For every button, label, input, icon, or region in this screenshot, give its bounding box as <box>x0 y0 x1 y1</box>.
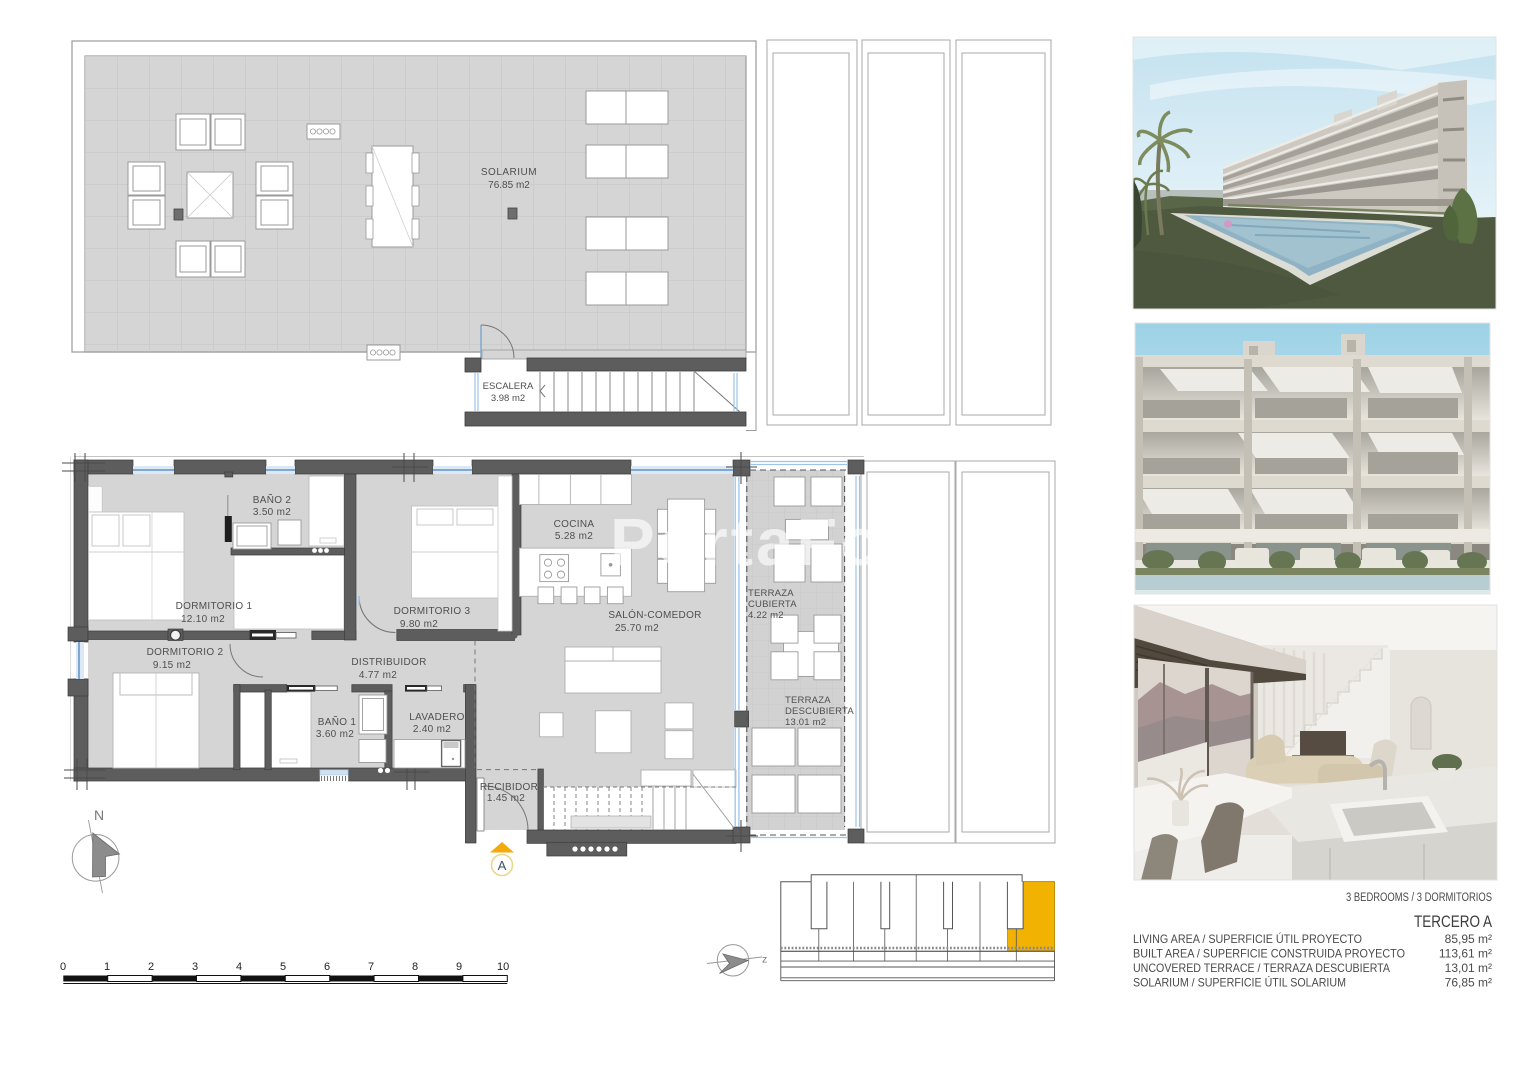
svg-text:SOLARIUM: SOLARIUM <box>481 167 537 178</box>
svg-text:76,85 m²: 76,85 m² <box>1445 976 1492 990</box>
svg-text:BAÑO 1: BAÑO 1 <box>318 715 357 728</box>
svg-text:DORMITORIO 1: DORMITORIO 1 <box>176 601 253 612</box>
svg-text:4: 4 <box>236 961 242 973</box>
svg-text:3.50 m2: 3.50 m2 <box>253 507 291 518</box>
svg-text:9.15 m2: 9.15 m2 <box>153 660 191 671</box>
svg-text:5.28 m2: 5.28 m2 <box>555 531 593 542</box>
svg-text:12.10 m2: 12.10 m2 <box>181 614 225 625</box>
svg-text:LAVADERO: LAVADERO <box>409 712 464 723</box>
svg-text:TERRAZA: TERRAZA <box>748 588 794 599</box>
svg-text:TERCERO A: TERCERO A <box>1414 913 1492 931</box>
svg-text:3.98 m2: 3.98 m2 <box>491 393 525 404</box>
svg-text:13.01 m2: 13.01 m2 <box>785 717 826 728</box>
svg-text:CUBIERTA: CUBIERTA <box>748 599 797 610</box>
svg-text:LIVING AREA / SUPERFICIE ÚTIL: LIVING AREA / SUPERFICIE ÚTIL PROYECTO <box>1133 931 1362 946</box>
svg-text:9: 9 <box>456 961 462 973</box>
svg-text:4.77 m2: 4.77 m2 <box>359 670 397 681</box>
svg-text:z: z <box>762 954 767 966</box>
svg-text:5: 5 <box>280 961 286 973</box>
svg-text:A: A <box>498 858 507 873</box>
svg-text:113,61 m²: 113,61 m² <box>1439 947 1492 961</box>
svg-text:13,01 m²: 13,01 m² <box>1445 961 1492 975</box>
svg-text:DESCUBIERTA: DESCUBIERTA <box>785 706 854 717</box>
svg-text:DISTRIBUIDOR: DISTRIBUIDOR <box>351 657 426 668</box>
svg-text:25.70 m2: 25.70 m2 <box>615 623 659 634</box>
svg-text:ESCALERA: ESCALERA <box>483 381 534 392</box>
svg-text:PortaFo: PortaFo <box>610 505 884 580</box>
svg-text:76.85 m2: 76.85 m2 <box>488 180 530 191</box>
svg-text:2: 2 <box>148 961 154 973</box>
svg-text:3 BEDROOMS / 3 DORMITORIOS: 3 BEDROOMS / 3 DORMITORIOS <box>1346 892 1492 904</box>
svg-text:85,95 m²: 85,95 m² <box>1445 932 1492 946</box>
svg-text:BAÑO 2: BAÑO 2 <box>253 493 292 506</box>
svg-text:2.40 m2: 2.40 m2 <box>413 724 451 735</box>
svg-text:10: 10 <box>497 961 509 973</box>
svg-text:3.60 m2: 3.60 m2 <box>316 729 354 740</box>
svg-text:1: 1 <box>104 961 110 973</box>
svg-text:DORMITORIO 2: DORMITORIO 2 <box>147 647 224 658</box>
svg-text:N: N <box>94 807 104 823</box>
svg-text:6: 6 <box>324 961 330 973</box>
svg-text:4.22 m2: 4.22 m2 <box>748 610 784 621</box>
svg-text:DORMITORIO 3: DORMITORIO 3 <box>394 606 471 617</box>
svg-text:7: 7 <box>368 961 374 973</box>
svg-text:RECIBIDOR: RECIBIDOR <box>480 782 538 793</box>
svg-text:0: 0 <box>60 961 66 973</box>
svg-text:COCINA: COCINA <box>554 519 595 530</box>
svg-text:TERRAZA: TERRAZA <box>785 695 831 706</box>
svg-text:9.80 m2: 9.80 m2 <box>400 619 438 630</box>
svg-text:1.45 m2: 1.45 m2 <box>487 793 525 804</box>
svg-text:SALÓN-COMEDOR: SALÓN-COMEDOR <box>608 608 701 621</box>
svg-text:UNCOVERED TERRACE / TERRAZA DE: UNCOVERED TERRACE / TERRAZA DESCUBIERTA <box>1133 961 1390 975</box>
svg-text:3: 3 <box>192 961 198 973</box>
svg-text:8: 8 <box>412 961 418 973</box>
svg-text:SOLARIUM / SUPERFICIE ÚTIL SOL: SOLARIUM / SUPERFICIE ÚTIL SOLARIUM <box>1133 975 1346 990</box>
svg-text:BUILT AREA / SUPERFICIE CONSTR: BUILT AREA / SUPERFICIE CONSTRUIDA PROYE… <box>1133 947 1405 961</box>
